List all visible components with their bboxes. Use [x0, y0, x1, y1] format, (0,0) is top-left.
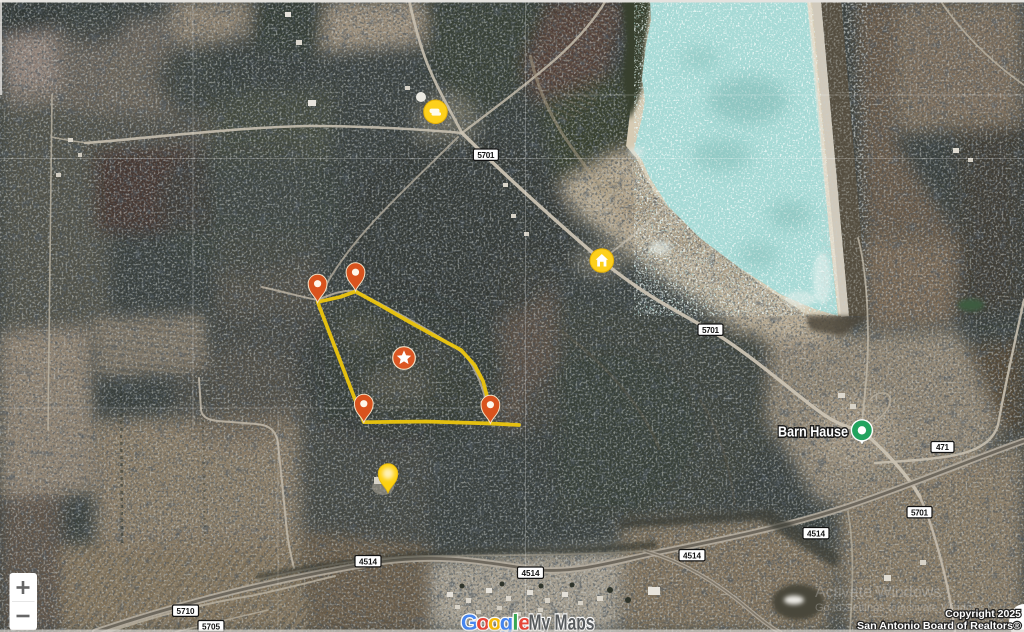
svg-text:g: g: [500, 610, 513, 632]
svg-text:4514: 4514: [359, 557, 377, 566]
svg-text:My Maps: My Maps: [529, 610, 595, 632]
svg-text:4514: 4514: [807, 529, 825, 538]
svg-text:5710: 5710: [177, 607, 195, 616]
svg-text:Copyright 2025: Copyright 2025: [945, 608, 1021, 620]
svg-text:5701: 5701: [702, 326, 719, 335]
svg-text:4514: 4514: [522, 569, 540, 578]
svg-text:Activate Windows: Activate Windows: [815, 584, 941, 601]
svg-text:5701: 5701: [911, 508, 928, 517]
svg-text:Barn Hause: Barn Hause: [778, 424, 848, 441]
svg-text:5701: 5701: [477, 151, 494, 160]
svg-text:4514: 4514: [683, 551, 701, 560]
svg-text:471: 471: [936, 443, 949, 452]
